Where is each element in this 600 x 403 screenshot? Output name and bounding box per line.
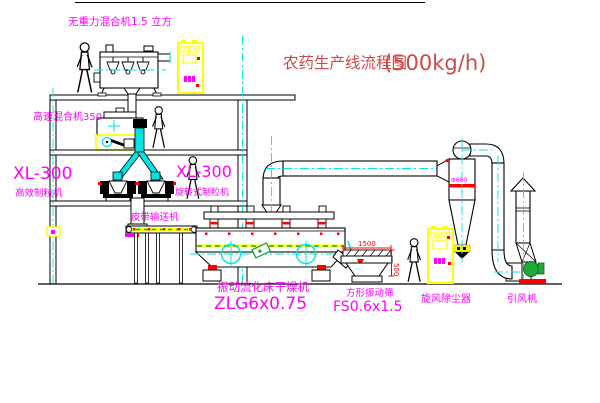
label-granulator-left-model: XL-300: [13, 164, 72, 184]
building-floor2-slab: [50, 150, 247, 155]
building-roof-slab: [50, 95, 295, 100]
label-high-speed-mixer: 高速混合机350: [33, 110, 102, 123]
label-cyclone: 旋风除尘器: [421, 292, 471, 305]
label-gravity-mixer: 无重力混合机1.5 立方: [68, 15, 172, 28]
label-belt-conveyor: 皮带输送机: [131, 211, 179, 223]
control-cabinet-icon: [178, 40, 203, 93]
label-granulator-right-model: XL-300: [176, 162, 232, 181]
label-dryer-model: ZLG6x0.75: [214, 294, 307, 314]
building-floor3-slab: [50, 201, 247, 206]
dimension-height: 500: [392, 263, 400, 276]
label-screen-model: FS0.6x1.5: [333, 299, 403, 315]
process-flow-diagram: 农药生产线流程图 (500kg/h) 无重力混合机1.5 立方 高速混合机350…: [0, 0, 600, 403]
page-title-capacity: (500kg/h): [384, 51, 486, 75]
label-dryer-name: 振动流化床干燥机: [217, 280, 309, 294]
control-cabinet-icon: [428, 226, 453, 283]
label-cyclone-diameter: Φ600: [451, 177, 467, 184]
label-fan: 引风机: [507, 292, 537, 305]
label-screen-name: 方形振动筛: [346, 287, 394, 299]
flow-diagram-canvas: 农药生产线流程图 (500kg/h) 无重力混合机1.5 立方 高速混合机350…: [0, 0, 600, 403]
label-granulator-right-name: 旋转式制粒机: [175, 186, 229, 198]
label-granulator-left-name: 高效制粒机: [15, 187, 63, 199]
dimension-length: 1500: [358, 240, 376, 248]
